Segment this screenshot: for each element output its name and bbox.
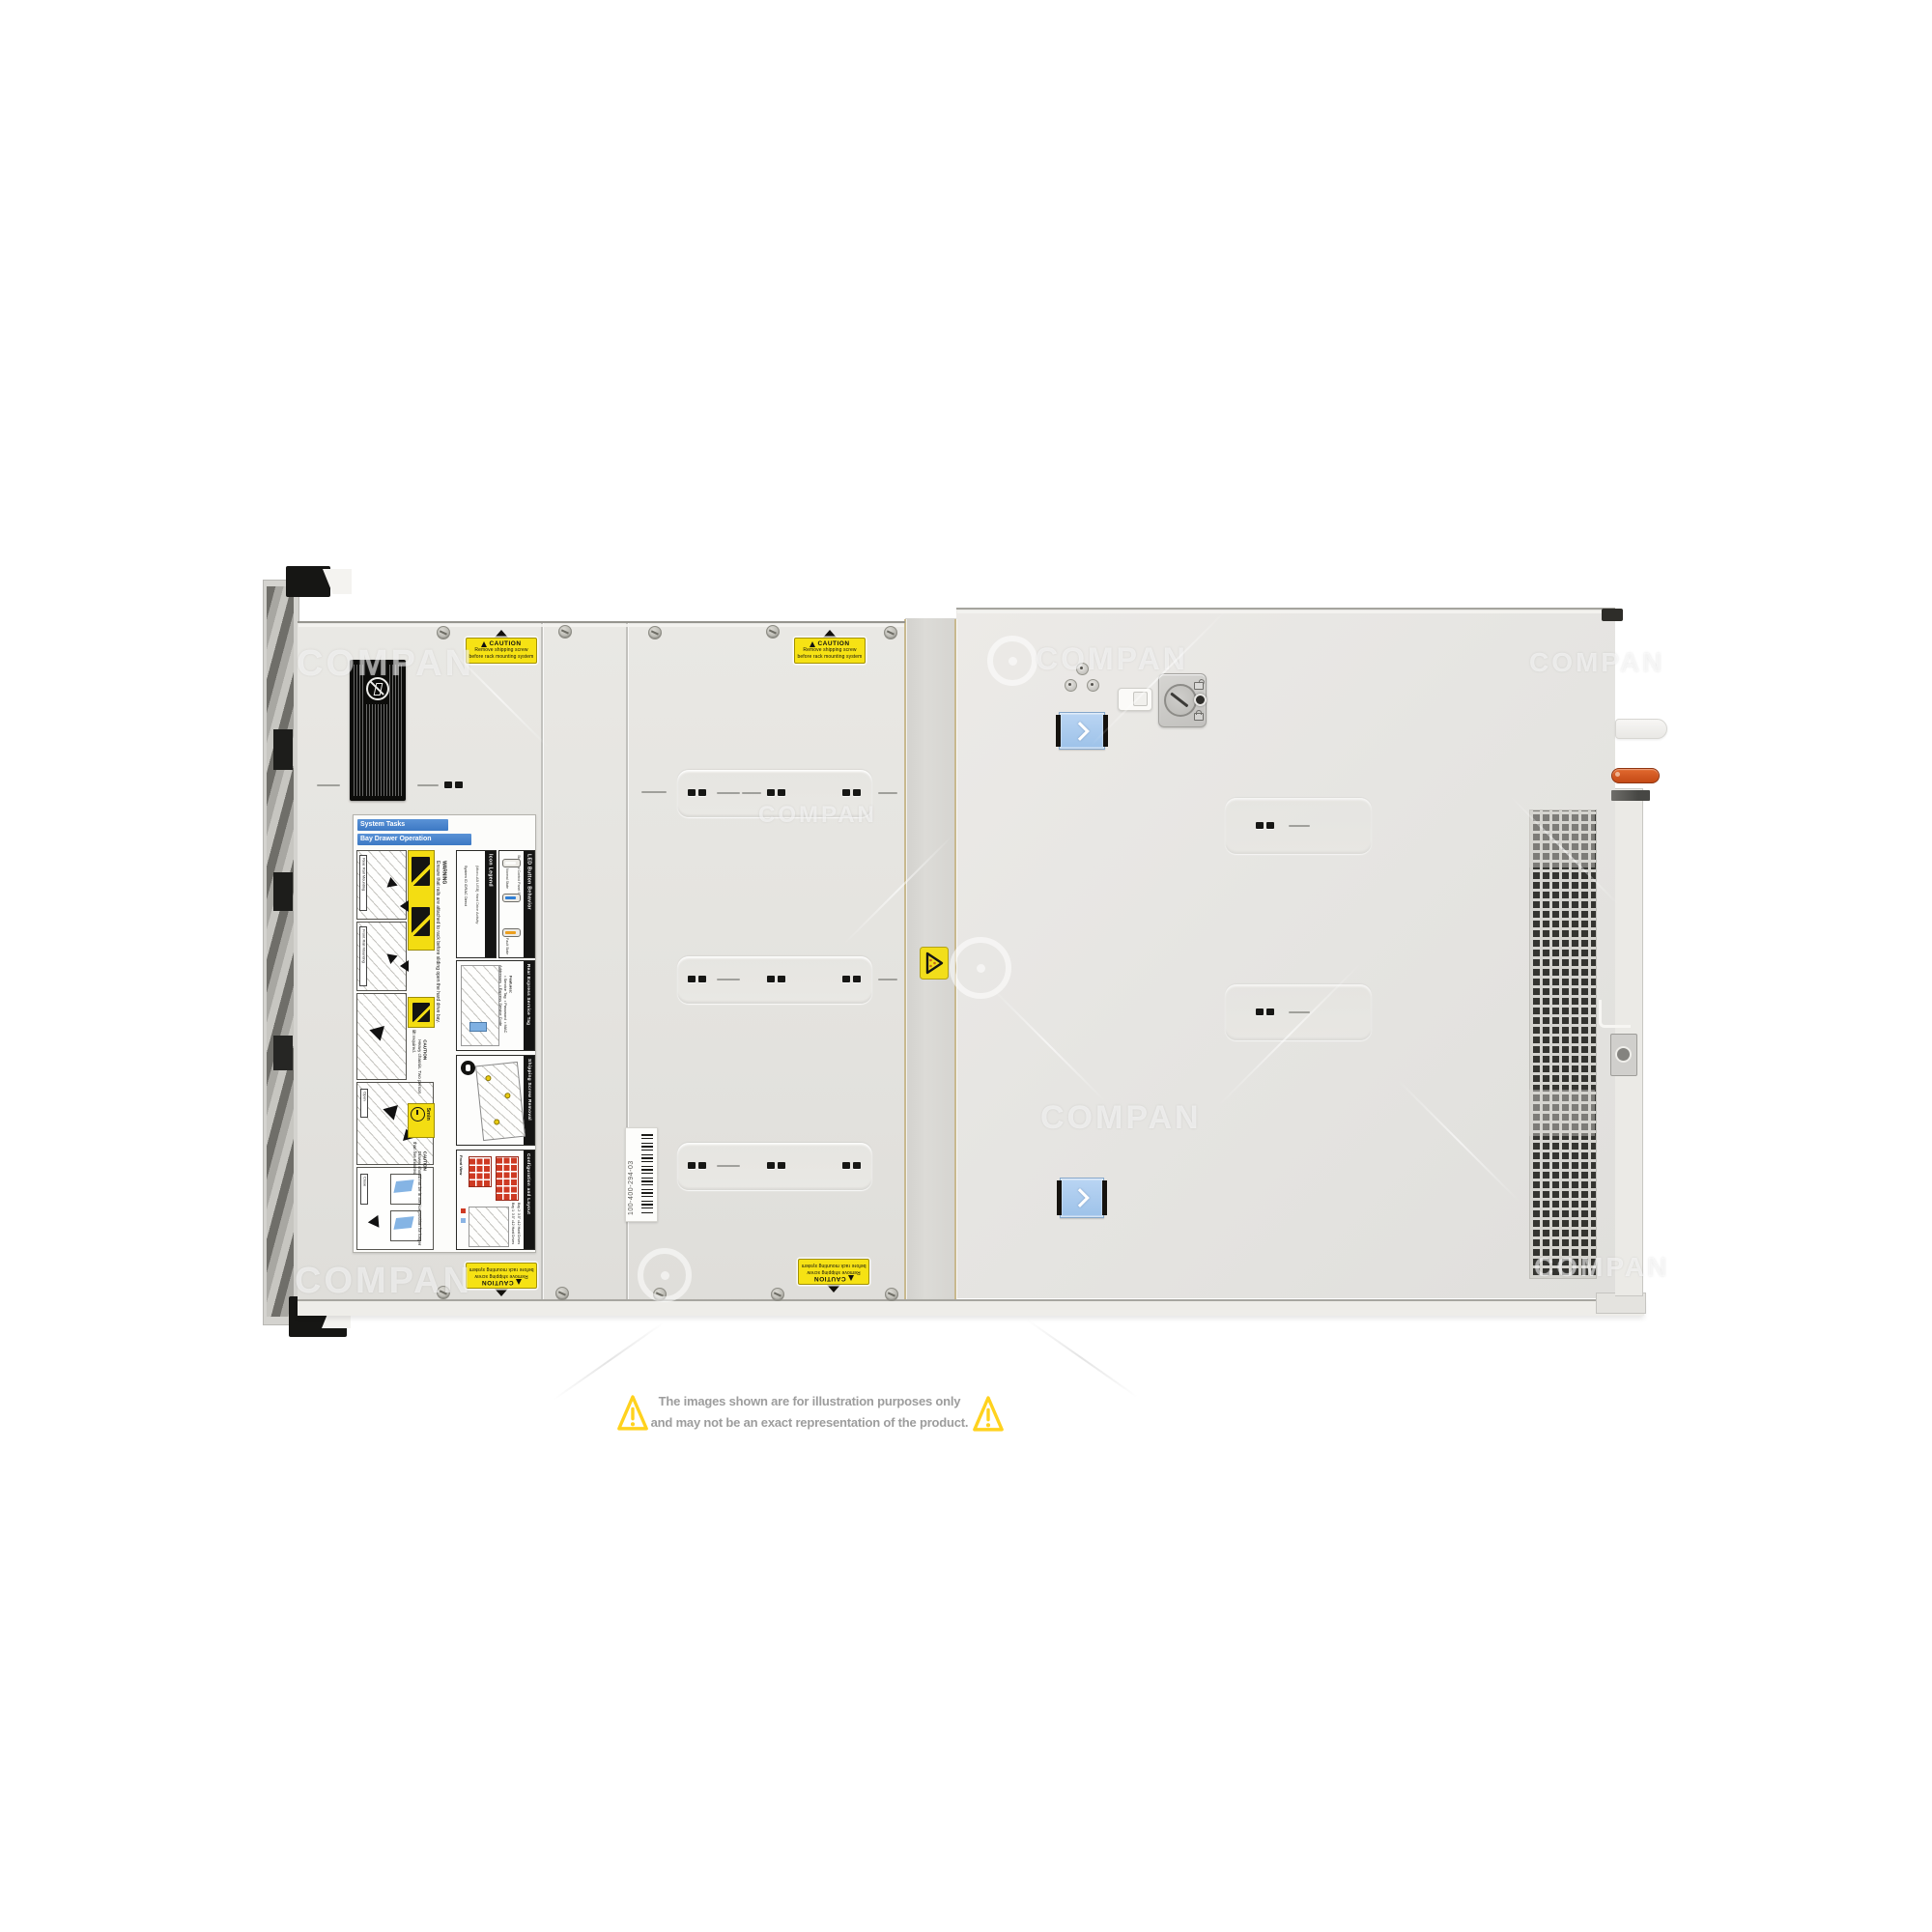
vent-slot-pair: [842, 1162, 861, 1169]
caution-line1: Remove shipping screw: [801, 1269, 867, 1276]
vent-slot-pair: [1256, 1009, 1274, 1015]
shipping-screw-header: Shipping Screw Removal: [524, 1056, 534, 1145]
stamp-mark: [878, 792, 897, 794]
stamp-mark: [717, 1165, 740, 1167]
warning-triangle-icon: [516, 1280, 522, 1286]
features-heading: Features:: [509, 976, 514, 993]
caution-drawer-service: CAUTION Drawer should not be in service …: [410, 1142, 433, 1248]
orange-release-lever: [1611, 768, 1660, 783]
arrow-icon: [386, 877, 399, 891]
stamp-mark: [1289, 825, 1310, 827]
screw-location-dot: [504, 1093, 511, 1099]
stamp-mark: [717, 792, 740, 794]
vent-slot-pair: [1256, 822, 1274, 829]
front-rail-mounting-tag: Front Rail Mounting: [359, 926, 367, 986]
configuration-layout-panel: Configuration and Layout Front View Bay …: [456, 1150, 535, 1250]
configuration-header: Configuration and Layout: [524, 1151, 534, 1249]
front-fan-blades: [267, 586, 294, 1317]
caution-line2: before rack mounting system: [469, 654, 534, 661]
chevron-right-icon: [1070, 722, 1090, 741]
rear-latch-hardware: [1611, 790, 1650, 801]
top-highlight-rear: [957, 611, 1612, 613]
disclaimer-text: The images shown are for illustration pu…: [636, 1391, 983, 1434]
screw: [558, 625, 572, 639]
stamp-mark: [878, 979, 897, 980]
service-info-label: System Tasks Bay Drawer Operation Rear R…: [353, 814, 536, 1253]
top-highlight: [298, 624, 904, 627]
chassis-top-edge: [298, 621, 905, 623]
led-fault-label: Fault State: [505, 938, 509, 954]
caution-pointer: [495, 1289, 508, 1296]
warning-triangle-icon: [810, 641, 815, 647]
watermark-logo: [950, 937, 1011, 999]
part-number-sticker: 100-400-294-03: [625, 1127, 658, 1222]
rear-handle: [1615, 719, 1667, 739]
caution-title: CAUTION: [489, 640, 521, 647]
pointer-triangle-icon: [400, 900, 409, 912]
watermark-text: COMPAN: [1529, 647, 1664, 678]
front-view-label: Front View: [459, 1155, 464, 1175]
bezel-dark-patch: [273, 872, 293, 911]
screw-slot: [1171, 692, 1189, 707]
vent-slot-pair: [842, 789, 861, 796]
stamp-mark: [641, 791, 667, 793]
rail-mounting-diagram: Front Rail Mounting: [356, 922, 407, 991]
vent-slot-pair: [444, 781, 463, 788]
pinch-hazard-strip: [408, 850, 435, 951]
warning-triangle-icon: [481, 641, 487, 647]
disclaimer: The images shown are for illustration pu…: [580, 1381, 1063, 1459]
arrow-icon: [368, 1212, 384, 1228]
latch-hole: [1615, 1046, 1632, 1063]
screw: [885, 1288, 898, 1301]
caution-label-shipping-screw: CAUTION Remove shipping screw before rac…: [798, 1259, 869, 1293]
caution-pointer: [827, 1285, 840, 1293]
watermark-text: COMPAN: [758, 802, 877, 829]
caution-pointer: [495, 630, 508, 638]
drawer-diagram: [356, 993, 407, 1080]
caution-line1: Remove shipping screw: [797, 647, 863, 654]
vent-slot-pair: [688, 1162, 706, 1169]
shipping-screw-sketch: [475, 1062, 526, 1141]
disclaimer-line2: and may not be an exact representation o…: [636, 1412, 983, 1434]
vent-slot-pair: [842, 976, 861, 982]
stamp-mark: [317, 784, 340, 786]
disclaimer-line1: The images shown are for illustration pu…: [636, 1391, 983, 1412]
rear-corner-notch: [1602, 609, 1623, 621]
caution-heavy-chassis: CAUTION Heavy chassis. Two person lift r…: [410, 1030, 433, 1097]
watermark-text: COMPAN: [297, 643, 474, 685]
rear-rail-mounting-tag: Rear Rail Mounting: [359, 855, 367, 911]
service-label-header-system-tasks: System Tasks: [357, 819, 448, 831]
led-panel-subtitle: Standard Control Panel Status: [517, 855, 521, 952]
caution-heavy-title: CAUTION: [422, 1039, 427, 1060]
stamp-mark: [417, 784, 439, 786]
open-tag: Open: [360, 1089, 368, 1118]
stamp-mark: [1289, 1011, 1310, 1013]
cover-rear-section: [956, 609, 1615, 1298]
watermark-logo: [987, 636, 1037, 686]
led-bar-blue: [502, 894, 521, 902]
screw-location-dot: [485, 1075, 492, 1082]
cover-release-button-top: [1059, 712, 1105, 750]
chassis-top-edge-rear: [956, 608, 1615, 610]
product-photo-scene: CAUTION Remove shipping screw before rac…: [0, 0, 1932, 1932]
pinch-warning-triangle-icon: [920, 947, 949, 980]
caution-drawer-text: Drawer should not be in service position…: [412, 1142, 422, 1247]
caution-line2: before rack mounting system: [469, 1266, 534, 1273]
barcode: [641, 1134, 653, 1215]
warning-triangle-icon-right: [972, 1393, 1005, 1440]
legend-hot-swap: [461, 1208, 466, 1213]
lock-icon: [1194, 713, 1204, 721]
stamp-mark: [742, 792, 761, 794]
bezel-dark-patch: [273, 1036, 293, 1070]
caution-label-shipping-screw: CAUTION Remove shipping screw before rac…: [466, 1263, 537, 1296]
caution-title: CAUTION: [481, 1279, 513, 1286]
hand-crush-glyph: [412, 1003, 430, 1022]
clock-icon: [411, 1107, 425, 1122]
bay2-label: Bay 2: 3.5" x12 Hard Drives: [517, 1203, 521, 1244]
bottom-flange: [298, 1299, 1644, 1316]
watermark-text: COMPAN: [1040, 1099, 1202, 1137]
rear-latch-plate: [1610, 1034, 1637, 1076]
five-minute-warning: 5min: [408, 1103, 435, 1138]
icon-item: (Micro-AB USB): [475, 866, 480, 893]
five-min-text: 5min: [425, 1108, 431, 1121]
led-normal-label: Normal State: [505, 868, 509, 889]
bezel-dark-patch: [273, 729, 293, 770]
screw: [555, 1287, 569, 1300]
cover-release-button-bottom: [1060, 1178, 1104, 1218]
caution-title: CAUTION: [813, 1275, 845, 1282]
pointer-triangle-icon: [400, 960, 409, 972]
led-bar-normal: [502, 859, 521, 867]
pinch-hazard-icon: [412, 857, 430, 886]
icon-item: iDRAC Direct: [464, 884, 469, 906]
service-tag-header: Rear Express Service Tag: [524, 961, 534, 1050]
screw: [648, 626, 662, 639]
rivet: [1087, 679, 1099, 692]
watermark-logo: [638, 1248, 692, 1302]
divider-seam-left: [904, 619, 906, 1300]
caution-drawer-title: CAUTION: [423, 1151, 428, 1171]
icon-item: System ID: [464, 866, 469, 883]
watermark-text: COMPAN: [295, 1261, 472, 1302]
keyhole: [1194, 694, 1207, 706]
service-tag-features: Features: • Service Tag • Password • MAC…: [501, 965, 519, 1044]
stop-hand-icon: [461, 1061, 475, 1075]
led-bar-fault: [502, 928, 521, 937]
close-tag: Close: [360, 1174, 368, 1205]
rail-warning-text: WARNING Ensure that rails are attached t…: [438, 850, 453, 1078]
icon-legend-header: Icon Legend: [485, 851, 496, 957]
pinch-warning-sticker: [920, 947, 949, 980]
button-clip: [1056, 715, 1061, 747]
iso-drawer-sketch: [469, 1207, 509, 1247]
warning-text: Ensure that rails are attached to rack b…: [435, 861, 440, 1023]
stamp-mark: [717, 979, 740, 980]
panel-seam: [541, 623, 543, 1299]
button-clip: [1102, 1180, 1107, 1215]
bay1-label: Bay 1: 3.5" x12 Hard Drives: [511, 1203, 515, 1244]
vent-baffle-shading: [1529, 810, 1595, 867]
service-label-header-bay-drawer: Bay Drawer Operation: [357, 834, 471, 845]
screw: [437, 626, 450, 639]
drive-bay-grid-2: [496, 1156, 519, 1201]
service-tag-panel: Rear Express Service Tag Features: • Ser…: [456, 960, 535, 1051]
screw: [766, 625, 780, 639]
caution-line1: Remove shipping screw: [469, 647, 534, 654]
warning-triangle-icon: [848, 1276, 854, 1282]
vent-slot-pair: [767, 976, 785, 982]
arrow-icon: [369, 1020, 389, 1040]
screw-location-dot: [494, 1119, 500, 1125]
arrow-icon: [386, 951, 399, 964]
vent-baffle-shading: [1529, 1090, 1595, 1136]
arrow-icon: [383, 1099, 403, 1120]
part-number-text: 100-400-294-03: [628, 1136, 635, 1215]
blue-tag-icon: [469, 1022, 487, 1032]
caution-title: CAUTION: [817, 640, 849, 647]
icon-item: Hard Drive Activity: [475, 894, 480, 924]
icon-legend-panel: Icon Legend System ID iDRAC Direct (Micr…: [456, 850, 497, 958]
caution-line1: Remove shipping screw: [469, 1273, 534, 1280]
led-panel-header: LED Button Behavior: [524, 851, 534, 957]
regulatory-text-block: [366, 704, 387, 796]
rear-vent-grid: [1529, 810, 1597, 1279]
legend-cold-swap: [461, 1218, 466, 1223]
rear-step-outline: [1599, 1000, 1631, 1028]
lock-screw: [1164, 684, 1197, 717]
button-clip: [1057, 1180, 1062, 1215]
caution-label-shipping-screw: CAUTION Remove shipping screw before rac…: [466, 630, 537, 664]
unlock-icon: [1194, 682, 1204, 690]
caution-line2: before rack mounting system: [801, 1263, 867, 1269]
caution-heavy-text: Heavy chassis. Two person lift required.: [412, 1030, 422, 1094]
screw: [771, 1288, 784, 1301]
vent-slot-pair: [767, 789, 785, 796]
warning-title: WARNING: [441, 861, 447, 884]
vent-slot-pair: [688, 976, 706, 982]
crush-hazard-icon: [408, 997, 435, 1028]
caution-label-shipping-screw: CAUTION Remove shipping screw before rac…: [794, 630, 866, 664]
rivet: [1065, 679, 1077, 692]
screw: [884, 626, 897, 639]
features-list: • Service Tag • Password • MAC Addresses…: [498, 965, 508, 1034]
chevron-right-icon: [1070, 1188, 1090, 1207]
vent-slot-pair: [688, 789, 706, 796]
service-tag-sketch: [461, 965, 499, 1046]
led-button-behavior-panel: LED Button Behavior Standard Control Pan…: [498, 850, 535, 958]
cover-lock-plate: [1158, 673, 1207, 727]
pinch-hazard-icon: [412, 907, 430, 936]
icon-legend-item: (Micro-AB USB) Hard Drive Activity: [470, 855, 485, 952]
caution-line2: before rack mounting system: [797, 654, 863, 661]
caution-pointer: [823, 630, 837, 638]
watermark-text: COMPAN: [1534, 1252, 1669, 1283]
shipping-screw-panel: Shipping Screw Removal: [456, 1055, 535, 1146]
drive-bay-grid-1: [469, 1156, 492, 1187]
vent-slot-pair: [767, 1162, 785, 1169]
server-top-view: CAUTION Remove shipping screw before rac…: [0, 0, 1932, 1932]
